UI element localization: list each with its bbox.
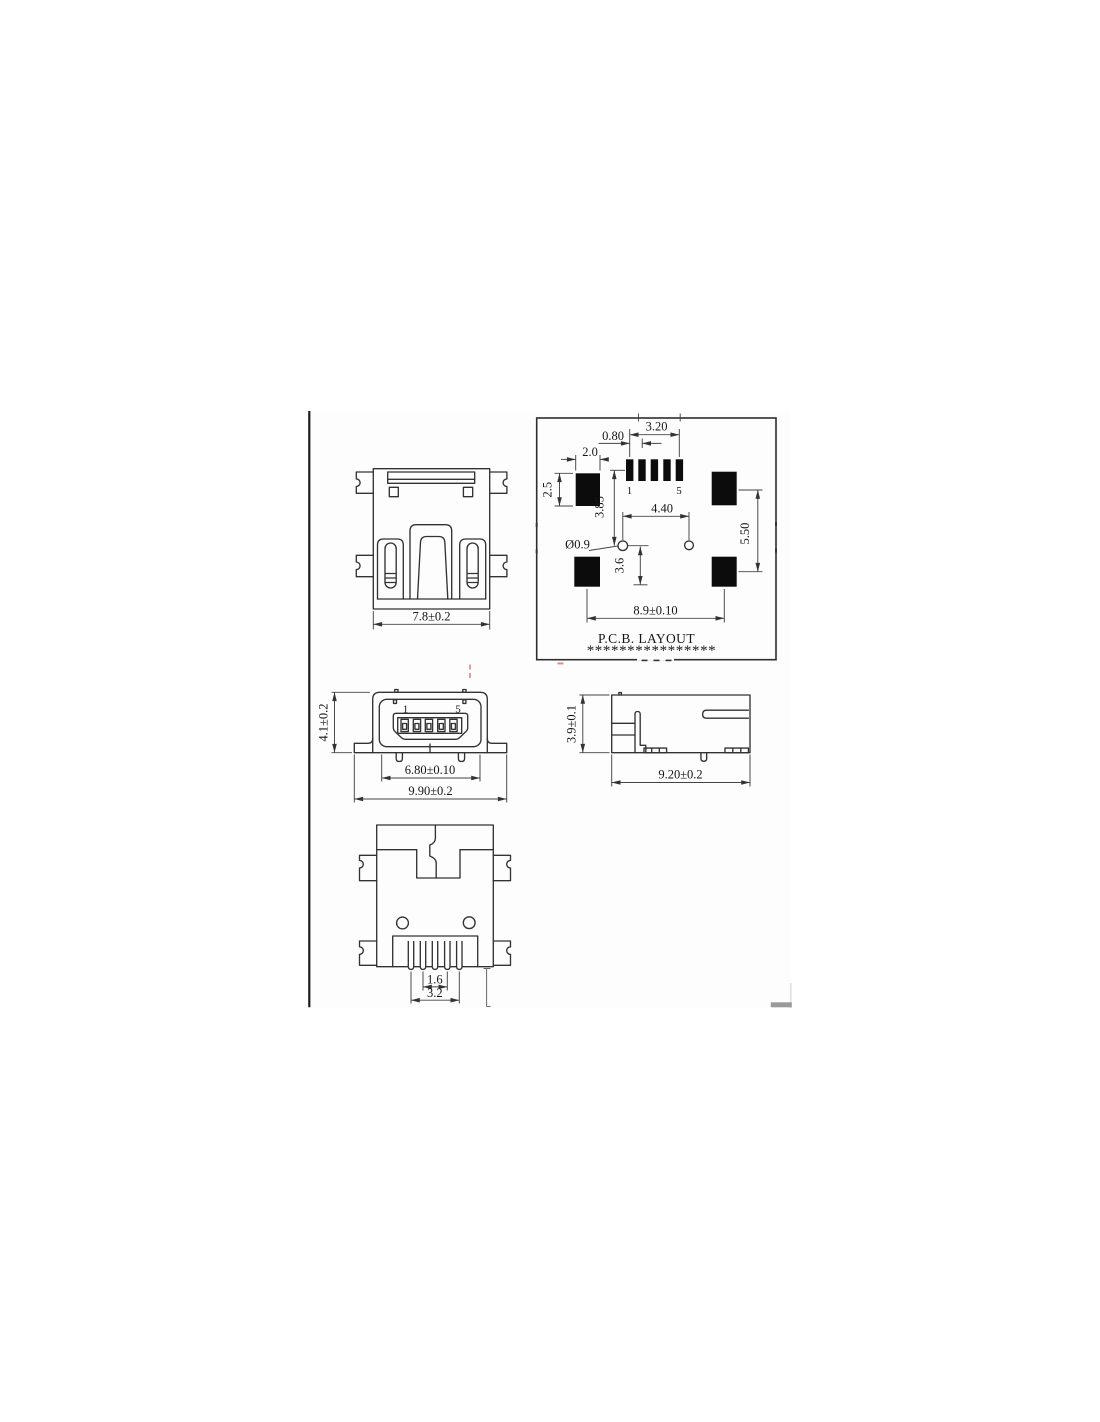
bottom-span-dim: 3.2 (427, 986, 443, 1000)
front-pin5-label: 5 (455, 704, 461, 716)
side-length-dim: 9.20±0.2 (658, 768, 702, 782)
front-outer-width-dim: 9.90±0.2 (408, 784, 452, 798)
front-pin1-label: 1 (403, 704, 409, 716)
dim-hole-dia: Ø0.9 (565, 538, 590, 552)
gray-bar (771, 1002, 792, 1007)
front-inner-width-dim: 6.80±0.10 (405, 763, 456, 777)
dim-pin-span: 3.20 (646, 420, 668, 434)
dim-hole-to-pad: 3.6 (613, 558, 627, 574)
dim-pad-col-span: 5.50 (738, 523, 752, 545)
bottom-pitch-dim: 1.6 (427, 973, 443, 987)
datasheet-page: 7.8±0.2 1 5 3.20 0.80 (0, 0, 1100, 1422)
red-mark-dash (558, 663, 564, 665)
front-height-dim: 4.1±0.2 (317, 703, 331, 741)
pcb-pin5-label: 5 (676, 485, 682, 497)
dim-pin-pitch: 0.80 (602, 429, 624, 443)
dim-pin-to-hole: 3.85 (593, 496, 607, 518)
dim-hole-span: 4.40 (651, 502, 673, 516)
dim-pad-width: 2.0 (582, 445, 598, 459)
dim-pad-height: 2.5 (541, 482, 555, 498)
side-height-dim: 3.9±0.1 (565, 705, 579, 743)
dim-pad-row-span: 8.9±0.10 (633, 604, 677, 618)
pcb-layout-stars: **************** (587, 643, 717, 659)
rear-width-dim-label: 7.8±0.2 (412, 610, 450, 624)
technical-drawing: 7.8±0.2 1 5 3.20 0.80 (0, 0, 1100, 1422)
pcb-pin1-label: 1 (627, 485, 633, 497)
